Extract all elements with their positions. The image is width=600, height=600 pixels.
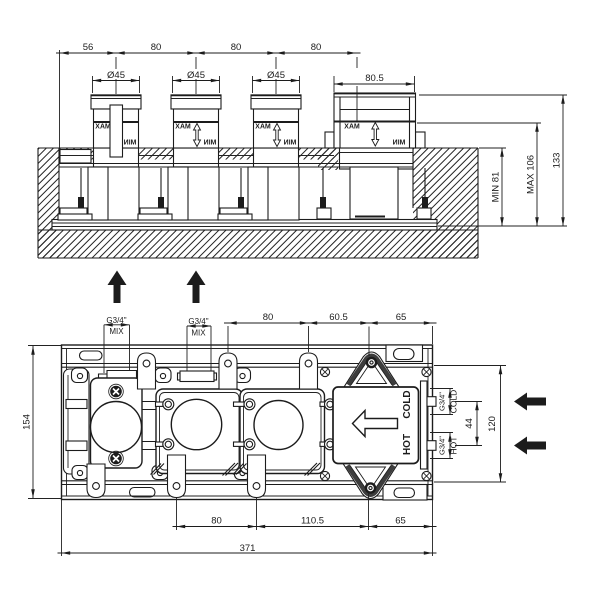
svg-text:G3/4": G3/4" [188,317,208,326]
svg-text:Ø45: Ø45 [107,70,125,81]
svg-text:120: 120 [487,416,498,432]
svg-text:80: 80 [231,42,242,53]
svg-text:154: 154 [22,414,33,430]
svg-text:MAX 106: MAX 106 [526,155,537,194]
svg-text:MIN: MIN [393,140,406,147]
svg-text:56: 56 [83,42,94,53]
svg-text:Ø45: Ø45 [267,70,285,81]
svg-text:MIN: MIN [124,140,137,147]
svg-text:MIX: MIX [191,329,206,338]
svg-text:Ø45: Ø45 [187,70,205,81]
svg-text:110.5: 110.5 [301,516,324,527]
svg-text:G3/4": G3/4" [438,392,447,411]
svg-text:G3/4": G3/4" [438,436,447,455]
svg-text:MIX: MIX [109,327,124,336]
svg-text:80: 80 [151,42,162,53]
svg-text:80: 80 [263,312,274,323]
svg-text:80: 80 [311,42,322,53]
svg-text:COLD: COLD [402,390,413,418]
svg-text:MIN: MIN [204,140,217,147]
svg-text:HOT: HOT [402,434,413,455]
svg-text:65: 65 [396,312,407,323]
svg-text:G3/4": G3/4" [106,316,126,325]
svg-text:65: 65 [395,516,406,527]
svg-text:MAX: MAX [255,124,271,131]
svg-text:80: 80 [211,516,222,527]
svg-text:MAX: MAX [344,124,360,131]
svg-text:MAX: MAX [95,124,111,131]
svg-text:80.5: 80.5 [365,73,384,84]
svg-text:371: 371 [240,543,256,554]
svg-text:MAX: MAX [175,124,191,131]
svg-text:MIN 81: MIN 81 [491,172,502,203]
svg-text:133: 133 [552,153,563,169]
svg-text:MIN: MIN [284,140,297,147]
svg-text:60.5: 60.5 [329,312,348,323]
svg-text:44: 44 [464,418,475,429]
